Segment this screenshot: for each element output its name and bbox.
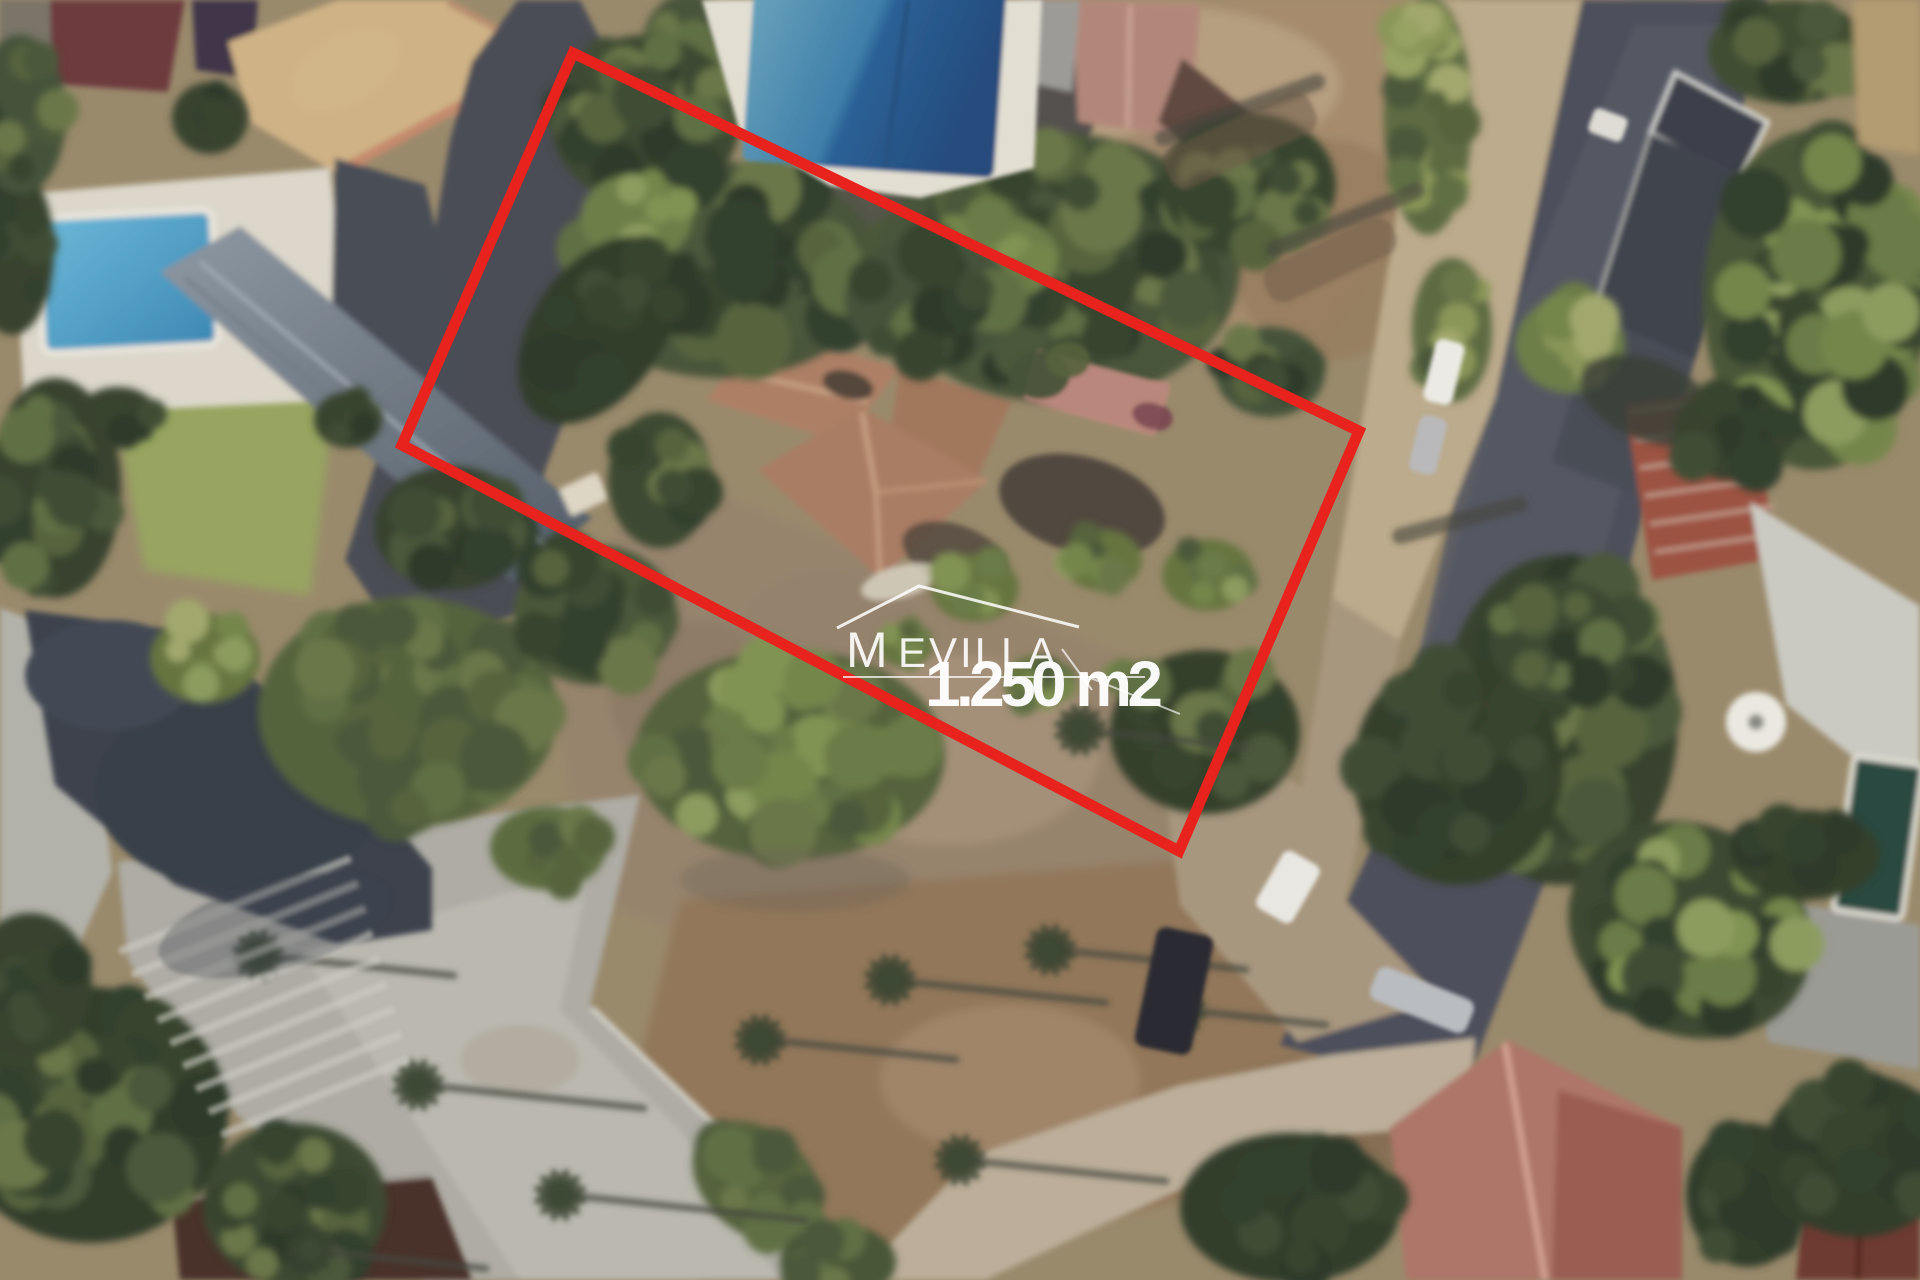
- svg-text:M: M: [846, 622, 890, 678]
- svg-text:1.250 m2: 1.250 m2: [925, 648, 1163, 720]
